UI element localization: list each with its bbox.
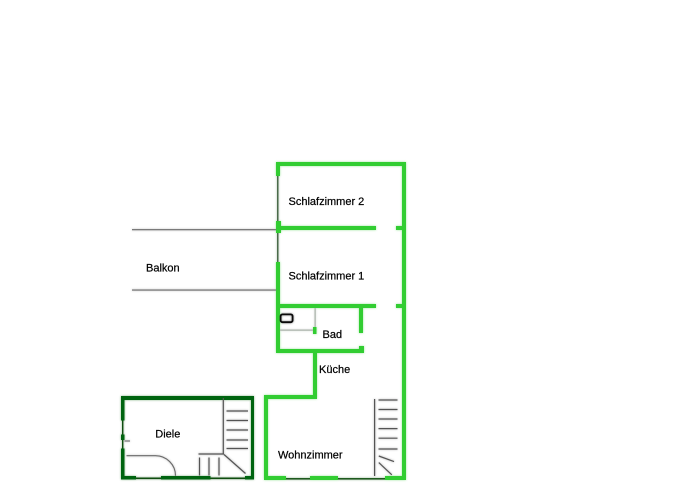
svg-text:Wohnzimmer: Wohnzimmer — [278, 450, 343, 462]
svg-text:Balkon: Balkon — [146, 262, 180, 274]
svg-text:Diele: Diele — [155, 428, 180, 440]
svg-text:Schlafzimmer 2: Schlafzimmer 2 — [289, 196, 365, 208]
svg-text:Küche: Küche — [319, 364, 350, 376]
svg-text:Schlafzimmer 1: Schlafzimmer 1 — [289, 270, 365, 282]
svg-text:Bad: Bad — [323, 329, 343, 341]
